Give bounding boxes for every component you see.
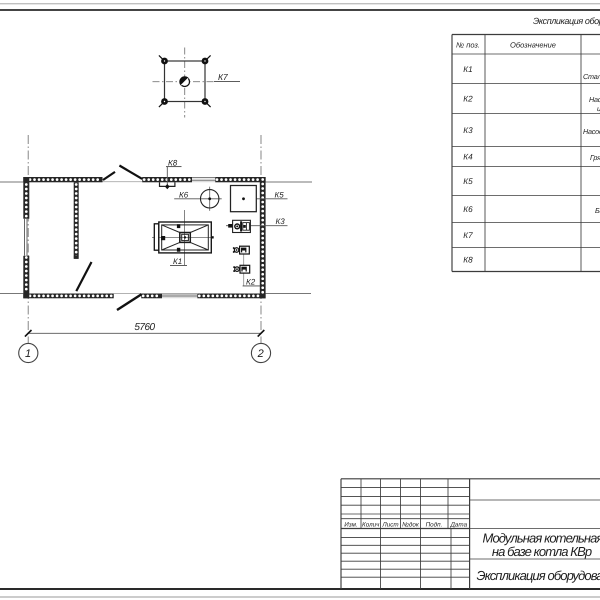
svg-text:Обозначение: Обозначение <box>510 41 556 50</box>
svg-text:К6: К6 <box>463 205 473 214</box>
svg-text:К3: К3 <box>276 217 286 226</box>
svg-text:К1: К1 <box>463 65 472 74</box>
svg-text:К5: К5 <box>275 190 285 199</box>
svg-text:№ поз.: № поз. <box>456 41 480 50</box>
svg-text:Стальной котел КВр: Стальной котел КВр <box>583 72 600 81</box>
svg-text:№док: №док <box>402 522 420 529</box>
svg-text:К7: К7 <box>218 72 228 82</box>
svg-text:Лист: Лист <box>381 522 398 529</box>
svg-text:2: 2 <box>257 348 264 360</box>
svg-text:Колич: Колич <box>362 522 380 529</box>
svg-text:Экспликация оборудования: Экспликация оборудования <box>533 16 600 26</box>
svg-text:К8: К8 <box>168 158 178 167</box>
svg-text:Изм.: Изм. <box>344 522 357 529</box>
svg-text:Бак: Бак <box>595 206 600 215</box>
svg-text:Экспликация оборудования: Экспликация оборудования <box>477 568 600 583</box>
svg-text:Подп.: Подп. <box>426 522 443 529</box>
svg-text:Дата: Дата <box>449 522 467 529</box>
svg-text:К4: К4 <box>463 153 473 162</box>
svg-text:на базе котла КВр: на базе котла КВр <box>492 544 592 559</box>
svg-text:Грязевик: Грязевик <box>590 153 600 162</box>
svg-text:К2: К2 <box>463 95 473 104</box>
svg-text:К8: К8 <box>463 256 473 265</box>
svg-text:Насос сетевой: Насос сетевой <box>589 95 600 104</box>
svg-text:К2: К2 <box>246 277 256 286</box>
svg-text:К3: К3 <box>463 126 473 135</box>
svg-text:К6: К6 <box>179 190 189 199</box>
svg-text:К5: К5 <box>463 177 473 186</box>
svg-text:К7: К7 <box>463 231 473 240</box>
svg-text:1: 1 <box>25 348 31 360</box>
svg-text:5760: 5760 <box>134 322 155 333</box>
svg-text:К1: К1 <box>173 257 182 266</box>
svg-text:Насос подпиточный: Насос подпиточный <box>583 127 600 136</box>
